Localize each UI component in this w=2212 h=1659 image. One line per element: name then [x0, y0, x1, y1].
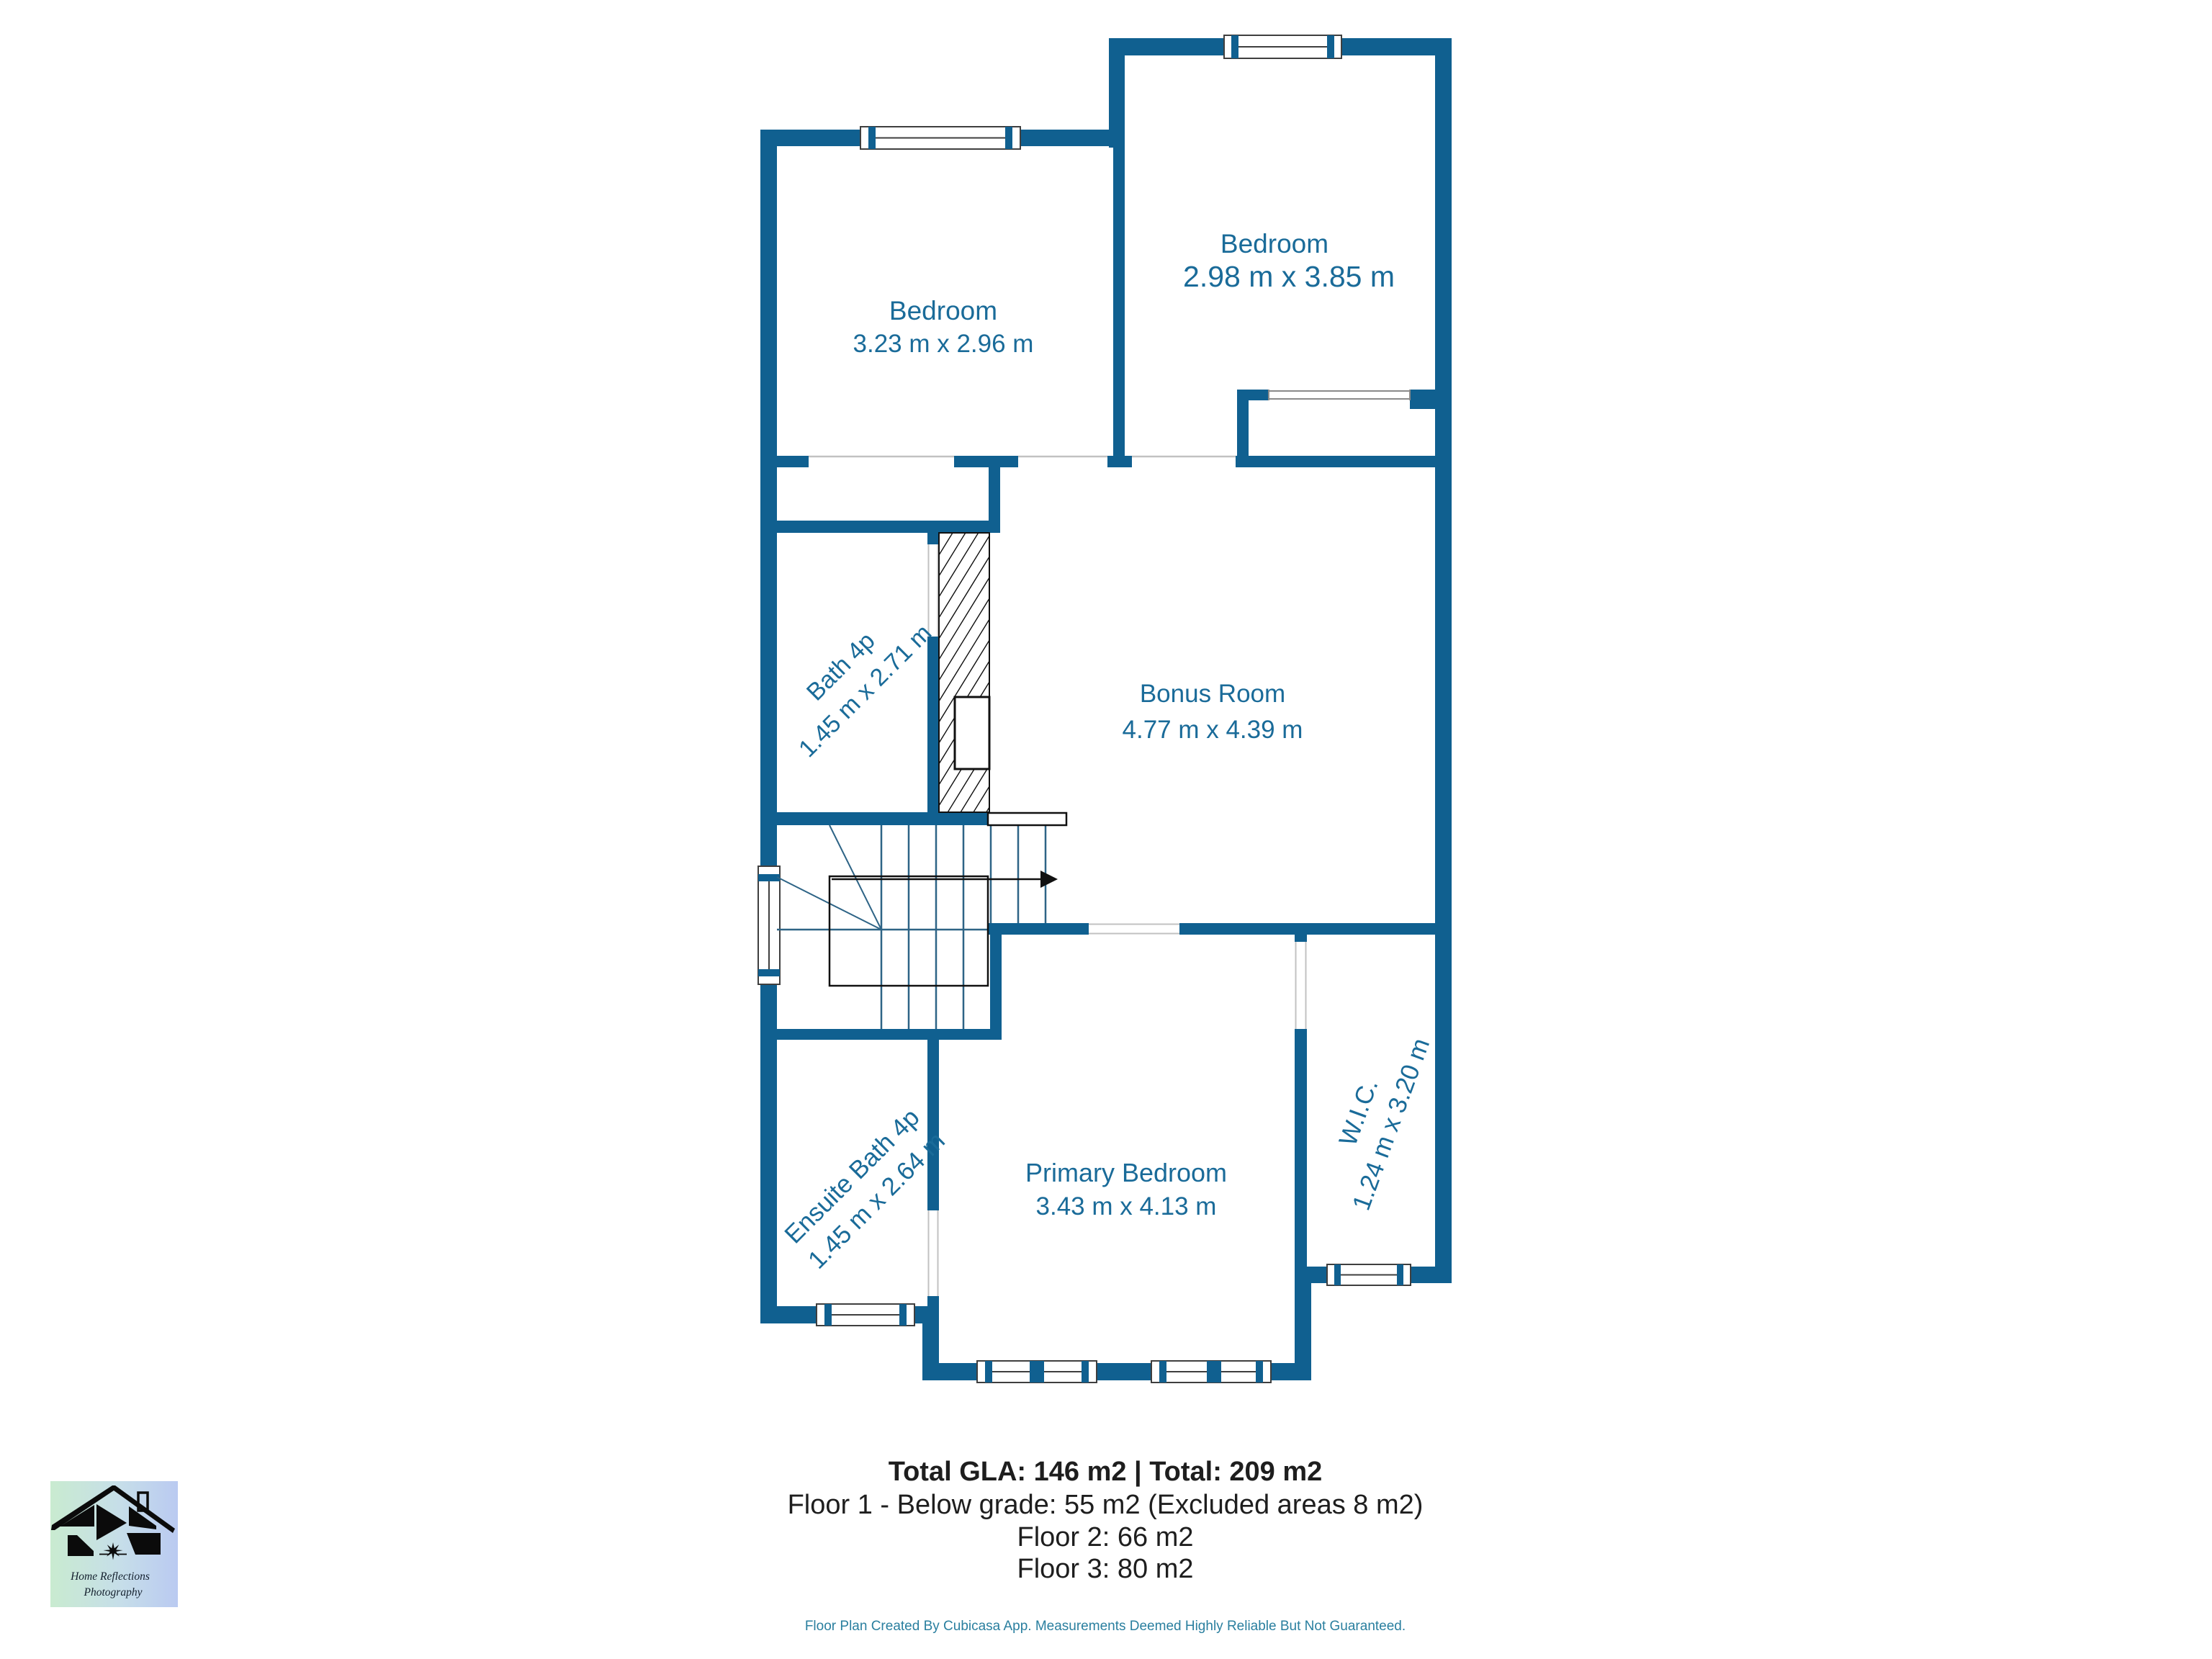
svg-text:Floor 1 - Below grade: 55 m2 (: Floor 1 - Below grade: 55 m2 (Excluded a…	[788, 1490, 1424, 1520]
svg-text:Floor 3: 80 m2: Floor 3: 80 m2	[1017, 1554, 1194, 1584]
svg-text:3.43 m x 4.13 m: 3.43 m x 4.13 m	[1036, 1192, 1217, 1220]
svg-text:Floor Plan Created By Cubicasa: Floor Plan Created By Cubicasa App. Meas…	[805, 1619, 1406, 1634]
svg-text:Total GLA: 146 m2 | Total: 209: Total GLA: 146 m2 | Total: 209 m2	[889, 1457, 1323, 1487]
svg-text:Photography: Photography	[84, 1586, 143, 1599]
svg-text:Bedroom: Bedroom	[1220, 229, 1328, 258]
svg-text:Bedroom: Bedroom	[889, 296, 997, 325]
svg-text:3.23 m x 2.96 m: 3.23 m x 2.96 m	[853, 330, 1034, 358]
svg-text:Floor 2: 66 m2: Floor 2: 66 m2	[1017, 1522, 1194, 1552]
svg-text:Primary Bedroom: Primary Bedroom	[1025, 1158, 1227, 1187]
svg-text:4.77 m x 4.39 m: 4.77 m x 4.39 m	[1123, 716, 1303, 744]
svg-text:Bonus Room: Bonus Room	[1140, 680, 1285, 708]
svg-text:Home Reflections: Home Reflections	[70, 1570, 150, 1583]
svg-text:2.98 m x 3.85 m: 2.98 m x 3.85 m	[1183, 260, 1395, 293]
